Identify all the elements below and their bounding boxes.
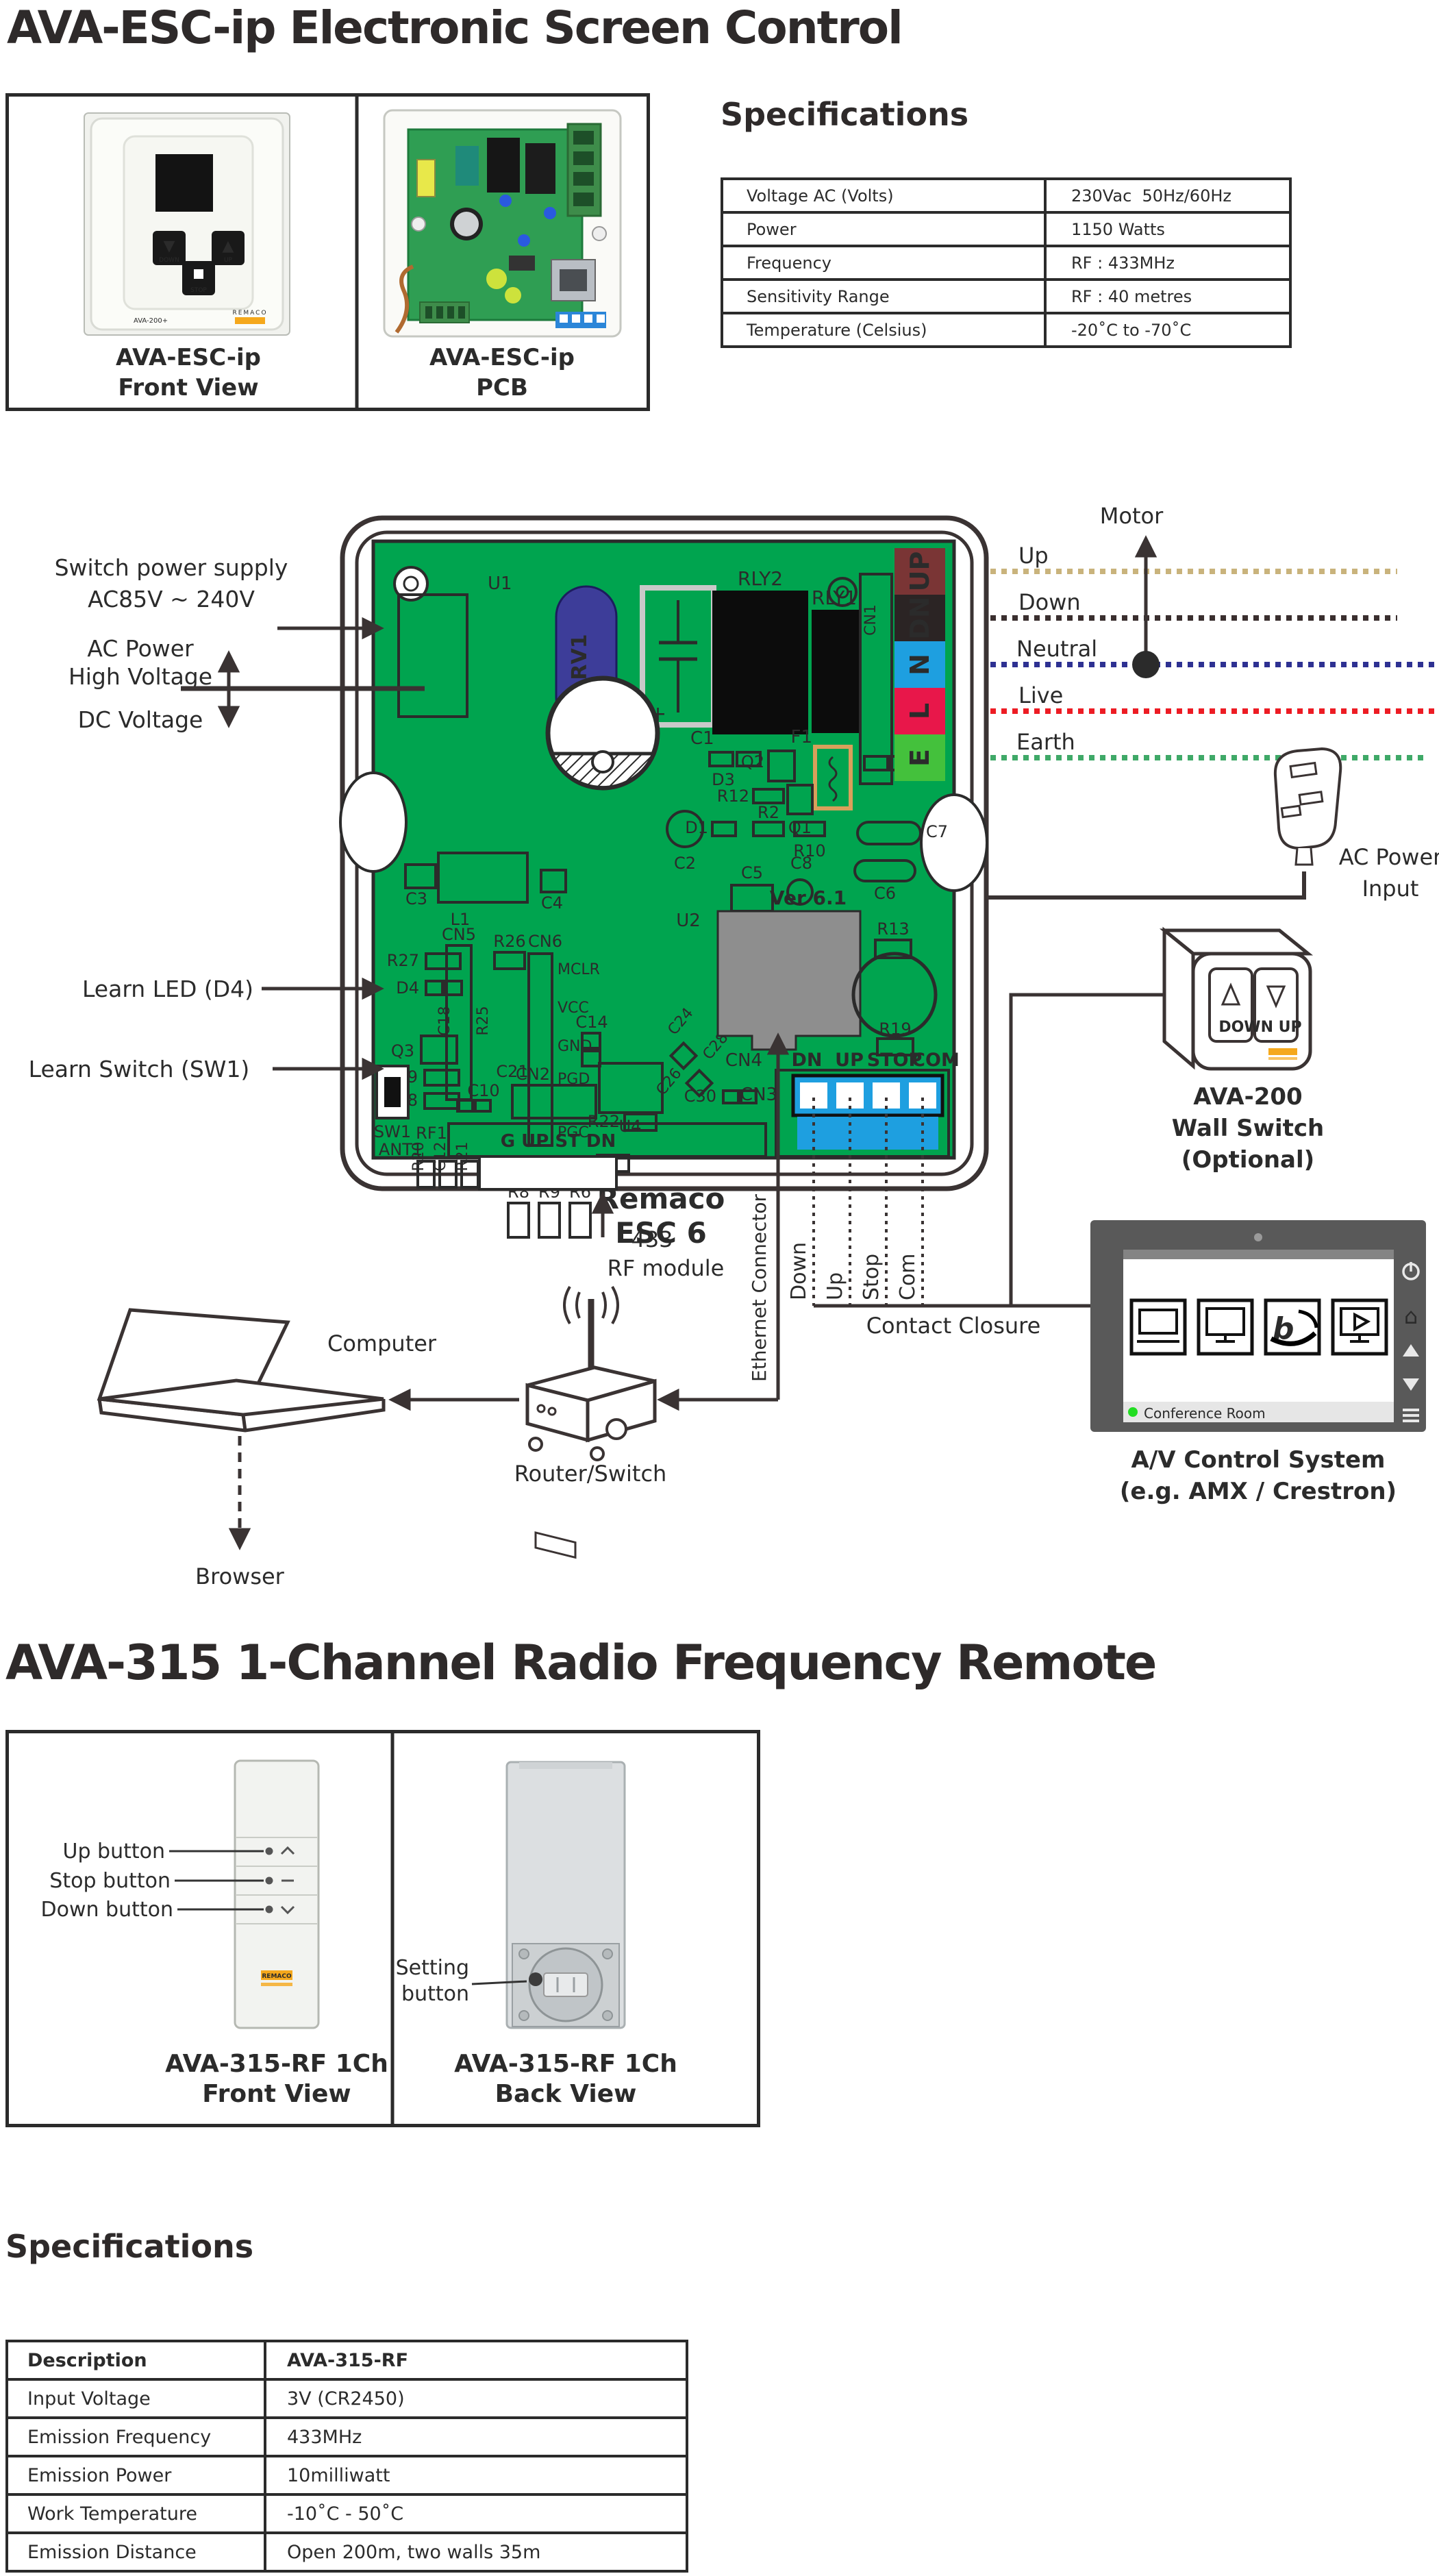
mclr-pin: MCLR [558,961,600,978]
terminal-e: E [905,749,935,767]
supply-label-2: AC85V ~ 240V [88,586,255,612]
down-button: ▼ DOWN [153,231,186,265]
r22-label: R22 [588,1112,620,1131]
bottom-connector [420,302,469,323]
pcb-photo [384,110,621,336]
svg-text:UP: UP [224,257,233,264]
terminal-n: N [905,654,935,676]
contact-up-label: Up [823,1272,847,1300]
c3-label: C3 [405,889,427,908]
page-title: AVA-ESC-ip Electronic Screen Control [7,1,902,54]
c1-label: C1 [690,728,714,749]
spec-label: Input Voltage [8,2381,266,2416]
table-row: Voltage AC (Volts)230Vac 50Hz/60Hz [723,180,1289,211]
ant1-label: ANT1 [379,1140,423,1159]
toroid-inductor [548,678,658,788]
motor-label: Motor [1100,503,1164,529]
green-terminal-block [568,124,601,216]
gnd-pin: GND [558,1038,592,1055]
sw1-switch: SW1 [374,1066,411,1141]
ac-power-label-2: High Voltage [68,663,212,690]
contact-closure-label: Contact Closure [866,1313,1041,1339]
ava315-title: AVA-315 1-Channel Radio Frequency Remote [5,1635,1155,1691]
remote-logo: REMACO [261,1970,292,1986]
live-wire-label: Live [1018,682,1063,708]
pcb-caption-2: PCB [476,374,528,401]
right-cutout [921,795,987,891]
supply-label-1: Switch power supply [55,554,288,581]
rf-module-label: RF module [608,1255,725,1281]
relay-2 [525,143,555,194]
ac-input-label-2: Input [1362,876,1419,902]
home-icon: ⌂ [1404,1303,1418,1329]
hdr-dn: DN [791,1050,822,1071]
spec-label: Power [723,214,1047,245]
camera-icon [1254,1233,1262,1241]
setting-button-label-1: Setting [396,1956,469,1980]
q3-label: Q3 [391,1041,414,1061]
front-caption-1: AVA-ESC-ip [116,344,261,371]
svg-text:REMACO: REMACO [232,310,267,317]
front-remote-caption-1: AVA-315-RF 1Ch [165,2050,388,2078]
ver-label: Ver 6.1 [770,887,847,909]
product-image-box: ▼ DOWN ▲ UP STOP AVA-200+ REMACO [5,93,650,411]
table-row: Sensitivity RangeRF : 40 metres [723,278,1289,312]
rly2-label: RLY2 [738,567,783,590]
c18-label: C18 [436,1006,453,1035]
table-row: FrequencyRF : 433MHz [723,245,1289,278]
r13-label: R13 [877,919,909,939]
spec-label: Frequency [723,247,1047,278]
wall-switch-caption-3: (Optional) [1181,1146,1314,1174]
r25-label: R25 [475,1006,492,1035]
u4-label: U4 [619,1117,642,1136]
svg-text:▼: ▼ [164,238,175,255]
setting-button [529,1972,542,1986]
contact-down-label: Down [787,1242,811,1300]
c8-label: C8 [790,854,812,873]
cn3-label: CN3 [740,1085,777,1105]
bottom-conn-label: G UP ST DN [501,1131,616,1152]
left-cutout [340,773,406,871]
spec-label: Voltage AC (Volts) [723,180,1047,211]
cn4-label: CN4 [725,1050,762,1071]
display-window [155,154,213,212]
table-row: Input Voltage3V (CR2450) [8,2378,686,2416]
spec-value: RF : 433MHz [1047,247,1289,278]
cn6-label: CN6 [528,932,562,951]
c14-label: C14 [575,1013,608,1032]
spec1-heading: Specifications [721,96,968,133]
c5-label: C5 [741,863,763,882]
front-caption-2: Front View [118,374,258,401]
qc-sticker [486,269,507,289]
browser-label: Browser [195,1563,285,1589]
table-row: Emission Frequency433MHz [8,2416,686,2455]
table-row: Emission DistanceOpen 200m, two walls 35… [8,2531,686,2570]
wall-switch-group: DOWN UP AVA-200 Wall Switch (Optional) [1164,930,1324,1174]
table-row: Work Temperature-10˚C - 50˚C [8,2493,686,2531]
svg-text:REMACO: REMACO [262,1973,292,1980]
r2-label: R2 [758,803,779,822]
spec-value: AVA-315-RF [266,2342,686,2378]
router-label: Router/Switch [514,1461,667,1487]
terminal-dn: DN [905,596,935,639]
table-row: Temperature (Celsius)-20˚C to -70˚C [723,312,1289,345]
c6-label: C6 [874,884,896,903]
d4-label: D4 [396,978,419,998]
cn2-label: CN2 [516,1065,550,1084]
spec-value: -10˚C - 50˚C [266,2496,686,2531]
pcb-caption-1: AVA-ESC-ip [429,344,575,371]
svg-text:STOP: STOP [190,287,207,294]
neutral-wire-label: Neutral [1016,636,1097,662]
cn1-label: CN1 [862,604,879,636]
rj45-jack [551,260,595,301]
sw1-label: SW1 [374,1122,411,1141]
spec-label: Emission Power [8,2457,266,2493]
switch-logo [1268,1048,1297,1055]
d1-label: D1 [685,818,708,837]
ac-wire [952,871,1304,897]
learn-switch-label: Learn Switch (SW1) [29,1056,250,1082]
spec-value: 10milliwatt [266,2457,686,2493]
blue-terminal [555,312,606,328]
capacitor-teal [455,146,479,186]
product-box-graphics: ▼ DOWN ▲ UP STOP AVA-200+ REMACO [9,97,647,408]
spec2-table: DescriptionAVA-315-RF Input Voltage3V (C… [5,2340,688,2573]
stop-button-label: Stop button [49,1869,171,1893]
cn4-rj45 [718,911,860,1050]
hdr-up: UP [835,1050,864,1071]
down-wire-label: Down [1018,589,1081,615]
rf-module-tab [479,1156,616,1189]
computer-group [99,1310,384,1431]
spec-value: 433MHz [266,2419,686,2455]
ac-input: AC Power Input [952,749,1439,902]
svg-text:DOWN: DOWN [159,257,179,264]
down-button-label: Down button [41,1898,174,1922]
wall-switch-caption-2: Wall Switch [1172,1115,1325,1142]
room-status: Conference Room [1144,1405,1266,1422]
c2-label: C2 [674,854,696,873]
r12-label: R12 [717,787,749,806]
table-row: DescriptionAVA-315-RF [8,2342,686,2378]
spec-label: Description [8,2342,266,2378]
up-wire-label: Up [1018,543,1049,569]
avcs-panel: b Conference Room ⌂ A/V Control System [1090,1220,1426,1505]
wall-switch-caption-1: AVA-200 [1193,1083,1302,1111]
remote-front-photo: REMACO [235,1761,318,2028]
power-terminals: UP DN N L E [894,548,945,781]
switch-watermark: DOWN UP [1218,1019,1301,1036]
spec-value: 230Vac 50Hz/60Hz [1047,180,1289,211]
spec-value: Open 200m, two walls 35m [266,2534,686,2570]
router-display [536,1533,575,1557]
ac-input-label-1: AC Power [1339,844,1439,870]
r26-label: R26 [493,932,525,951]
spec-value: 1150 Watts [1047,214,1289,245]
rly1-label: RLY1 [812,586,857,609]
spec-value: 3V (CR2450) [266,2381,686,2416]
cn5-label: CN5 [442,925,476,944]
up-button: ▲ UP [212,231,245,265]
c12-label: C12 [432,1141,449,1171]
c10-label: C10 [467,1081,499,1100]
table-row: Power1150 Watts [723,211,1289,245]
transformer [417,160,435,197]
cn3-terminal-block [793,1076,942,1150]
spec-label: Emission Frequency [8,2419,266,2455]
spec-label: Sensitivity Range [723,281,1047,312]
learn-led-label: Learn LED (D4) [82,976,253,1002]
stop-button: STOP [182,261,215,295]
f1-label: F1 [791,727,813,747]
datasheet-page: AVA-ESC-ip Electronic Screen Control ▼ D… [0,0,1439,2576]
spec-label: Work Temperature [8,2496,266,2531]
computer-label: Computer [327,1330,437,1357]
router-group [527,1287,655,1557]
remote-front-labels: Up button Stop button Down button [41,1840,264,1922]
ethernet-label: Ethernet Connector [748,1194,771,1382]
plate-model-text: AVA-200+ [134,317,168,325]
spec2-heading: Specifications [5,2228,253,2265]
setting-button-label-2: button [401,1982,469,2006]
avcs-caption-2: (e.g. AMX / Crestron) [1120,1478,1397,1505]
spec-value: RF : 40 metres [1047,281,1289,312]
table-row: Emission Power10milliwatt [8,2455,686,2493]
menu-icon [1403,1409,1419,1422]
r27-label: R27 [387,951,419,970]
svg-text:RV1: RV1 [568,634,592,680]
remote-image-box: REMACO Up button Stop button Down button [5,1730,760,2127]
up-button-label: Up button [63,1840,166,1863]
relay2 [712,591,808,734]
front-remote-caption-2: Front View [202,2080,351,2108]
relay-1 [487,138,520,193]
front-view-photo: ▼ DOWN ▲ UP STOP AVA-200+ REMACO [84,113,290,335]
c4-label: C4 [541,893,563,913]
neutral-junction-dot [1132,651,1160,678]
rf1-label: RF1 [416,1124,447,1143]
status-dot [1128,1407,1138,1417]
q2-label: Q2 [741,752,764,771]
back-remote-caption-1: AVA-315-RF 1Ch [454,2050,677,2078]
c7-label: C7 [926,822,948,841]
earth-wire-label: Earth [1016,729,1075,755]
spec-label: Temperature (Celsius) [723,314,1047,345]
svg-text:▲: ▲ [223,238,234,255]
ic-chip [509,256,535,271]
contact-stop-label: Stop [860,1254,884,1300]
remote-back-photo [507,1762,625,2028]
dc-voltage-label: DC Voltage [78,706,203,733]
spec-value: -20˚C to -70˚C [1047,314,1289,345]
spec1-table: Voltage AC (Volts)230Vac 50Hz/60Hz Power… [721,177,1292,348]
back-remote-caption-2: Back View [495,2080,637,2108]
wiring-diagram: Up Down Neutral Live Earth Motor AC Powe… [0,480,1439,1603]
power-plug-icon [1275,749,1340,865]
ac-power-label-1: AC Power [87,635,194,662]
avcs-caption-1: A/V Control System [1131,1446,1386,1474]
relay1 [812,610,860,733]
pcb-board: U1 RV1 + C1 RLY2 RLY1 CN1 [340,541,987,1250]
terminal-up: UP [905,552,935,592]
terminal-l: L [905,703,935,719]
contact-com-label: Com [896,1253,920,1300]
rf433-label: 433 [631,1226,673,1252]
c30-label: C30 [684,1087,716,1106]
u2-label: U2 [676,911,701,931]
motor-connection: Motor [1100,503,1164,678]
hdr-com: COM [912,1050,960,1071]
spec-label: Emission Distance [8,2534,266,2570]
u1-label: U1 [488,573,512,594]
q1-label: Q1 [788,818,812,837]
remote-box-graphics: REMACO Up button Stop button Down button [9,1733,757,2124]
